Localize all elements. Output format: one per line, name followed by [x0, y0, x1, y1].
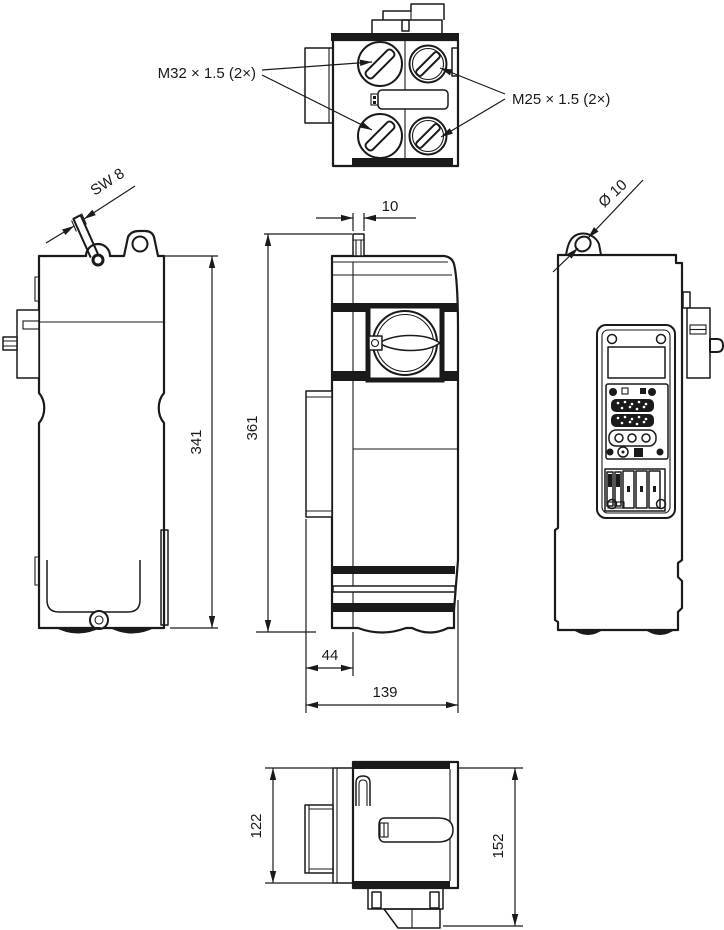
- top-view: M32 × 1.5 (2×) M25 × 1.5 (2×): [158, 4, 611, 166]
- label-hole-diameter: Ø 10: [595, 176, 630, 211]
- dimension-sw8: SW 8: [46, 165, 135, 243]
- label-gland-right: M25 × 1.5 (2×): [512, 91, 610, 108]
- mounting-lug-hole: [133, 237, 148, 252]
- bottom-foot: [372, 892, 381, 908]
- dim-body-depth: 122: [248, 813, 265, 838]
- cable-gland-m25-bottom: [410, 118, 447, 155]
- cable-gland-m25-top: [410, 46, 447, 83]
- dim-total-depth: 152: [490, 833, 507, 858]
- bottom-rear-panel: [333, 768, 353, 883]
- dim-body-height: 341: [188, 429, 205, 454]
- connector-panel: [597, 325, 675, 518]
- dimension-10: 10: [316, 198, 416, 231]
- bottom-foot: [430, 892, 439, 908]
- side-view-left: SW 8 341: [3, 165, 218, 633]
- front-view: 10 361 44 139: [244, 198, 458, 713]
- technical-drawing-sheet: M32 × 1.5 (2×) M25 × 1.5 (2×) SW 8 341: [0, 0, 724, 930]
- dim-front-depth: 44: [322, 647, 339, 664]
- top-seal-bar: [331, 33, 459, 41]
- dimension-341: 341: [157, 256, 218, 628]
- bottom-view: 122 152: [248, 762, 523, 928]
- cable-gland-m32-top: [358, 42, 402, 86]
- dim-total-width: 139: [372, 684, 397, 701]
- side-body: [39, 231, 164, 628]
- rotary-switch: [368, 306, 442, 380]
- top-screw-boss: [93, 255, 103, 265]
- dim-total-height: 361: [244, 415, 261, 440]
- rear-view: Ø 10: [553, 176, 723, 635]
- rear-shaft-block: [687, 308, 710, 378]
- front-rear-block: [306, 391, 332, 517]
- side-connector-block: [17, 310, 39, 378]
- cable-gland-m32-bottom: [358, 114, 402, 158]
- top-tab-notch: [402, 20, 409, 31]
- rear-shaft-stub: [710, 339, 723, 352]
- bottom-switch-handle: [379, 818, 453, 842]
- top-tab-upper: [383, 4, 444, 20]
- front-stud: [353, 234, 364, 256]
- top-bottom-bar: [352, 158, 453, 165]
- label-gland-left: M32 × 1.5 (2×): [158, 65, 256, 82]
- dim-stud-width: 10: [382, 198, 399, 215]
- drawing-canvas: M32 × 1.5 (2×) M25 × 1.5 (2×) SW 8 341: [0, 0, 724, 930]
- side-shaft-stub: [3, 337, 17, 350]
- top-center-rib: [378, 90, 448, 109]
- bottom-screw-boss: [90, 611, 108, 629]
- bottom-tab-wide: [368, 888, 443, 909]
